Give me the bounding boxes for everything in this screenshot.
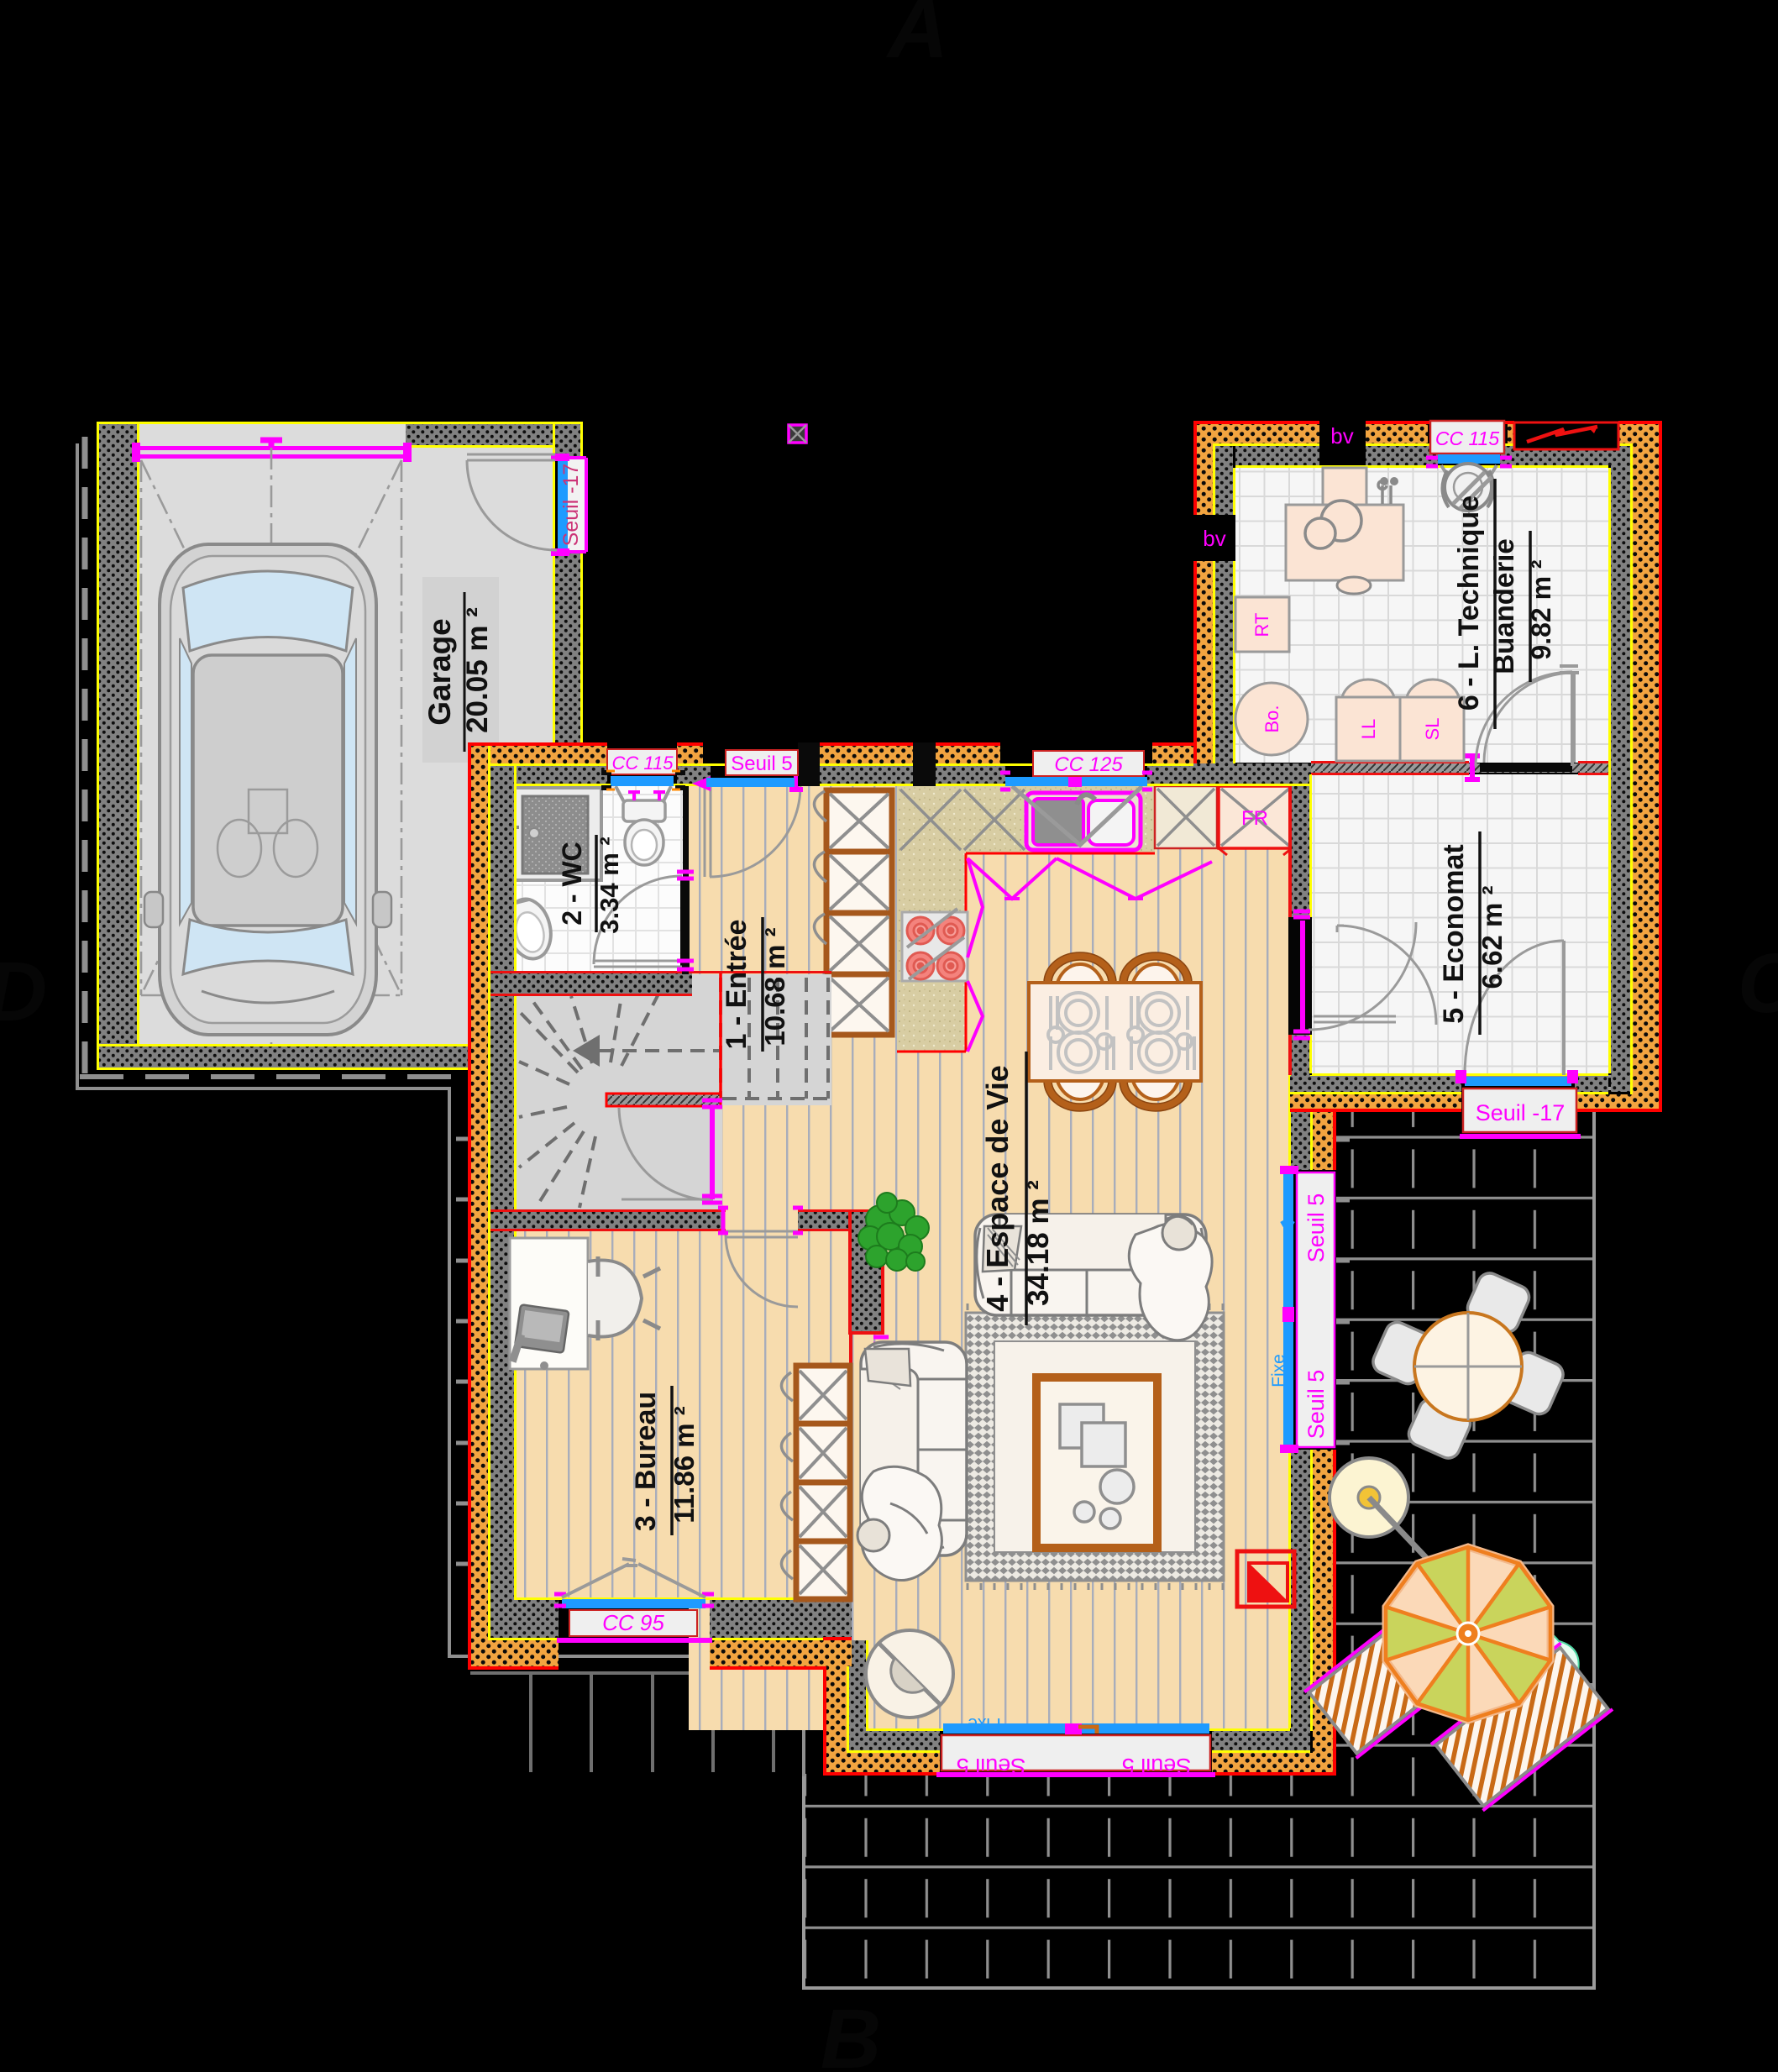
svg-text:10.68 m ²: 10.68 m ² [759,927,790,1046]
svg-text:3.34 m ²: 3.34 m ² [595,837,624,933]
svg-text:Seuil 5: Seuil 5 [731,753,792,775]
svg-text:Fixe: Fixe [1269,1354,1288,1387]
svg-text:Seuil -17: Seuil -17 [559,464,583,547]
svg-text:9.82 m ²: 9.82 m ² [1526,559,1556,659]
svg-text:5 - Economat: 5 - Economat [1438,844,1470,1023]
svg-text:bv: bv [1330,423,1353,448]
svg-text:Bo.: Bo. [1261,705,1282,732]
svg-text:6 - L. Technique: 6 - L. Technique [1453,496,1485,711]
svg-text:CC 115: CC 115 [1435,428,1499,449]
svg-text:A: A [885,0,948,76]
svg-text:Seuil 5: Seuil 5 [1303,1370,1329,1440]
svg-text:4 - Espace de Vie: 4 - Espace de Vie [980,1065,1015,1312]
svg-text:Garage: Garage [422,618,457,726]
svg-text:FR: FR [1241,807,1268,830]
svg-text:CC 115: CC 115 [612,753,674,774]
svg-text:Seuil -17: Seuil -17 [1476,1100,1566,1125]
svg-text:20.05 m ²: 20.05 m ² [461,607,494,733]
svg-text:C: C [1738,936,1778,1031]
svg-text:Seuil 5: Seuil 5 [1303,1193,1329,1263]
svg-text:B: B [821,1992,881,2072]
svg-text:6.62 m ²: 6.62 m ² [1476,886,1508,989]
svg-text:CC 125: CC 125 [1054,753,1123,776]
svg-text:Buanderie: Buanderie [1488,538,1519,674]
svg-text:2 - WC: 2 - WC [557,842,587,926]
svg-text:LL: LL [1358,719,1379,739]
svg-text:3 - Bureau: 3 - Bureau [630,1392,662,1531]
svg-text:SL: SL [1422,718,1443,741]
svg-text:34.18 m ²: 34.18 m ² [1022,1180,1055,1306]
svg-text:CC 95: CC 95 [602,1610,664,1635]
svg-text:1 - Entrée: 1 - Entrée [721,920,753,1050]
svg-text:11.86 m ²: 11.86 m ² [669,1406,700,1523]
svg-text:RT: RT [1251,613,1272,637]
svg-text:D: D [0,945,47,1039]
svg-text:bv: bv [1203,526,1225,551]
svg-text:Fixe: Fixe [968,1714,1001,1734]
